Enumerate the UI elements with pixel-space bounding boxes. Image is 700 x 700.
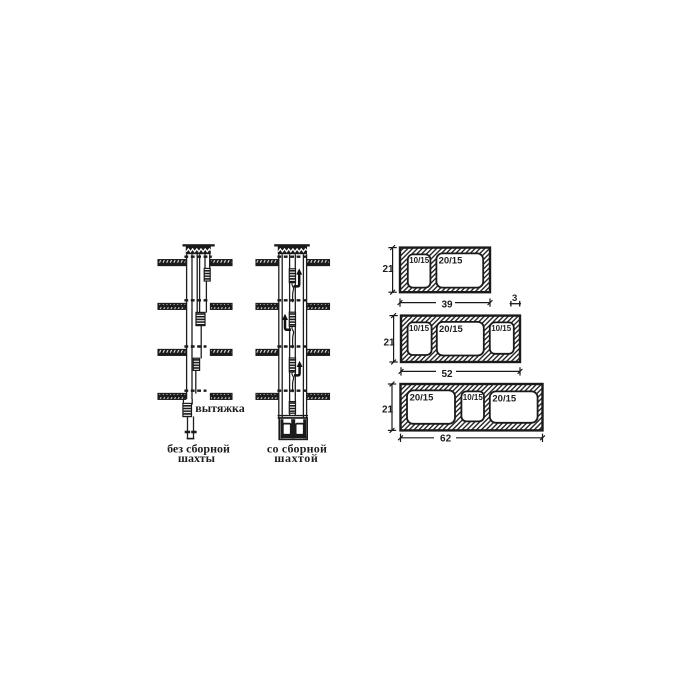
svg-text:20/15: 20/15 bbox=[439, 324, 463, 335]
svg-text:20/15: 20/15 bbox=[410, 393, 434, 404]
svg-text:вытяжка: вытяжка bbox=[195, 401, 245, 415]
svg-text:20/15: 20/15 bbox=[439, 255, 463, 266]
svg-text:10/15: 10/15 bbox=[491, 324, 512, 333]
svg-text:шахты: шахты bbox=[178, 451, 216, 465]
svg-text:20/15: 20/15 bbox=[492, 393, 516, 404]
svg-text:10/15: 10/15 bbox=[409, 324, 430, 333]
svg-text:21: 21 bbox=[383, 337, 395, 348]
svg-text:10/15: 10/15 bbox=[463, 393, 484, 402]
svg-text:21: 21 bbox=[382, 404, 394, 415]
svg-text:3: 3 bbox=[512, 293, 517, 304]
svg-text:21: 21 bbox=[382, 264, 394, 275]
svg-text:шахтой: шахтой bbox=[274, 451, 318, 465]
svg-text:10/15: 10/15 bbox=[409, 256, 430, 265]
svg-text:52: 52 bbox=[441, 369, 453, 380]
svg-text:62: 62 bbox=[440, 434, 452, 445]
svg-text:39: 39 bbox=[441, 299, 453, 310]
